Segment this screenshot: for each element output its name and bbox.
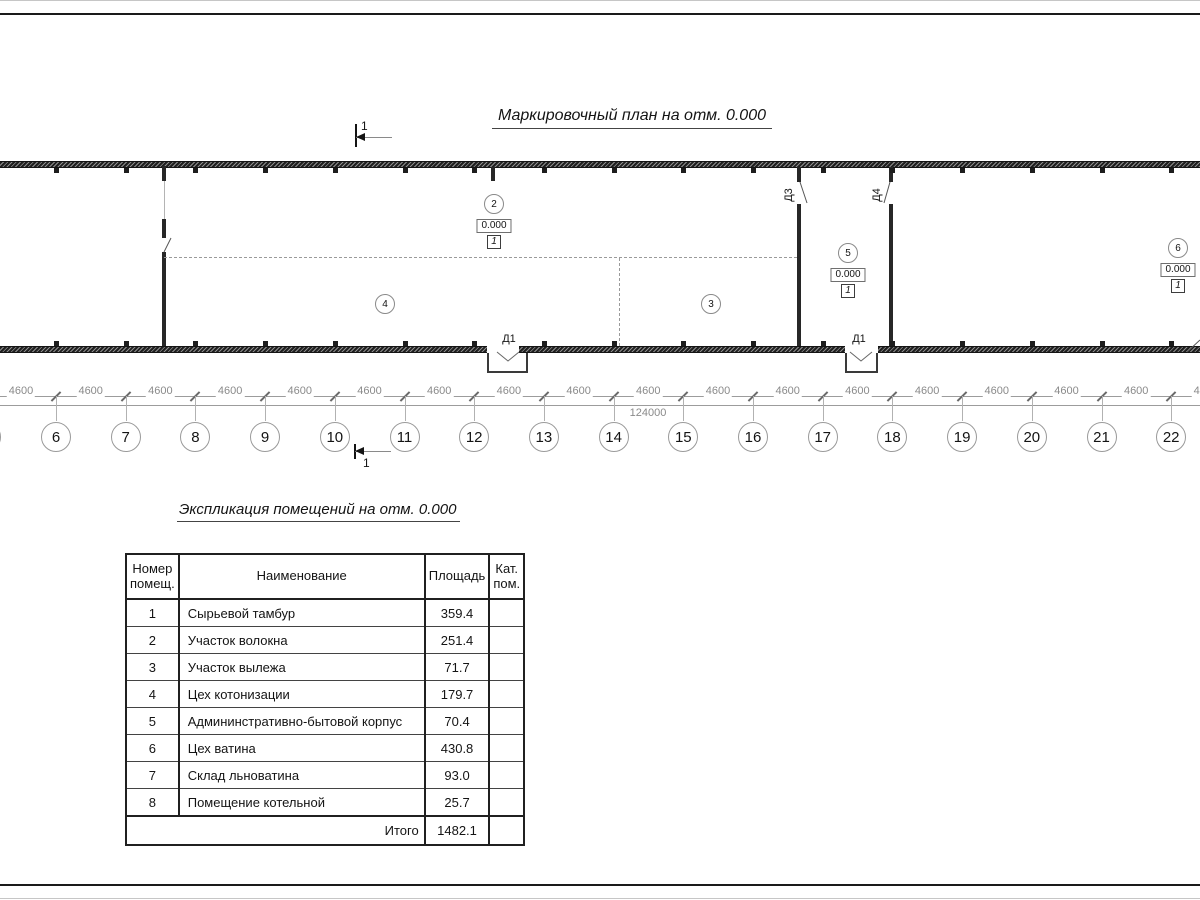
- bay-dimension-label: 4600: [216, 385, 244, 397]
- elevation-mark: 0.000: [830, 268, 865, 282]
- door-label: Д3: [783, 184, 795, 206]
- column-mark: [821, 341, 826, 346]
- floor-type-mark: 1: [1171, 279, 1185, 293]
- cell-room-name: Участок волокна: [179, 627, 425, 654]
- table-row: 5Админинстративно-бытовой корпус70.4: [126, 708, 524, 735]
- column-mark: [263, 168, 268, 173]
- door-label: Д1: [502, 333, 516, 345]
- floor-type-mark: 1: [487, 235, 501, 249]
- column-mark: [193, 168, 198, 173]
- cell-room-name: Помещение котельной: [179, 789, 425, 817]
- column-mark: [612, 341, 617, 346]
- cell-room-number: 5: [126, 708, 179, 735]
- cell-room-number: 3: [126, 654, 179, 681]
- axis-extension-line: [1032, 396, 1033, 421]
- room-number-bubble: 5: [838, 243, 858, 263]
- column-mark: [124, 168, 129, 173]
- axis-bubble: 18: [877, 422, 907, 452]
- cell-room-category: [489, 599, 524, 627]
- cell-room-number: 7: [126, 762, 179, 789]
- column-mark: [1169, 168, 1174, 173]
- axis-bubble-partial: [0, 422, 1, 452]
- door-porch-right: [845, 353, 878, 373]
- bay-dimension-label: 4600: [76, 385, 104, 397]
- sheet-edge-bottom: [0, 898, 1200, 899]
- bay-dimension-label: 4600: [286, 385, 314, 397]
- room-schedule-table: Номер помещ. Наименование Площадь Кат. п…: [125, 553, 525, 846]
- door-porch-left: [487, 353, 528, 373]
- wall-stub: [491, 167, 495, 181]
- wall-c-lower: [889, 204, 893, 346]
- table-title: Экспликация помещений на отм. 0.000: [177, 501, 460, 522]
- cell-room-name: Участок вылежа: [179, 654, 425, 681]
- bay-dimension-label: 4600: [983, 385, 1011, 397]
- column-mark: [333, 341, 338, 346]
- axis-extension-line: [683, 396, 684, 421]
- table-row: 3Участок вылежа71.7: [126, 654, 524, 681]
- axis-extension-line: [1171, 396, 1172, 421]
- header-room-area: Площадь: [425, 554, 490, 599]
- column-mark: [821, 168, 826, 173]
- axis-extension-line: [544, 396, 545, 421]
- wall-b-lower: [797, 204, 801, 346]
- bay-dimension-label: 4600: [843, 385, 871, 397]
- cell-total-area: 1482.1: [425, 816, 490, 845]
- bay-dimension-label: 4600: [564, 385, 592, 397]
- table-row: 7Склад льноватина93.0: [126, 762, 524, 789]
- cell-room-category: [489, 789, 524, 817]
- cell-room-category: [489, 654, 524, 681]
- cell-room-category: [489, 681, 524, 708]
- axis-bubble: 8: [180, 422, 210, 452]
- wall-b-stub: [797, 167, 801, 182]
- cell-room-category: [489, 735, 524, 762]
- wall-a-opening-line: [164, 181, 165, 219]
- axis-bubble: 16: [738, 422, 768, 452]
- axis-extension-line: [195, 396, 196, 421]
- column-mark: [960, 341, 965, 346]
- elevation-mark: 0.000: [476, 219, 511, 233]
- room-number-bubble: 6: [1168, 238, 1188, 258]
- cell-room-name: Склад льноватина: [179, 762, 425, 789]
- table-row: 1Сырьевой тамбур359.4: [126, 599, 524, 627]
- bay-dimension-label: 4600: [355, 385, 383, 397]
- zone-boundary-vertical: [619, 258, 620, 346]
- axis-bubble: 14: [599, 422, 629, 452]
- column-mark: [890, 341, 895, 346]
- axis-extension-line: [892, 396, 893, 421]
- bay-dimension-label: 4600: [146, 385, 174, 397]
- section-mark-bottom-label: 1: [363, 456, 370, 470]
- cell-room-number: 2: [126, 627, 179, 654]
- header-room-category: Кат. пом.: [489, 554, 524, 599]
- cell-room-area: 430.8: [425, 735, 490, 762]
- axis-extension-line: [474, 396, 475, 421]
- column-mark: [1100, 168, 1105, 173]
- bay-dimension-label: 4600: [773, 385, 801, 397]
- sheet-border-bottom: [0, 884, 1200, 886]
- axis-extension-line: [962, 396, 963, 421]
- axis-bubble: 19: [947, 422, 977, 452]
- cell-room-category: [489, 708, 524, 735]
- section-mark-top-label: 1: [361, 119, 368, 133]
- column-mark: [263, 341, 268, 346]
- sheet-border-top: [0, 13, 1200, 15]
- column-mark: [960, 168, 965, 173]
- plan-title: Маркировочный план на отм. 0.000: [492, 107, 772, 129]
- header-room-name: Наименование: [179, 554, 425, 599]
- room-number-bubble: 2: [484, 194, 504, 214]
- cell-room-name: Цех ватина: [179, 735, 425, 762]
- column-mark: [54, 341, 59, 346]
- cell-room-area: 179.7: [425, 681, 490, 708]
- table-row: 6Цех ватина430.8: [126, 735, 524, 762]
- door-label: Д1: [852, 333, 866, 345]
- cell-room-name: Админинстративно-бытовой корпус: [179, 708, 425, 735]
- room-number-bubble: 4: [375, 294, 395, 314]
- door-swing-d3: [800, 182, 807, 203]
- axis-bubble: 9: [250, 422, 280, 452]
- axis-extension-line: [126, 396, 127, 421]
- section-arrow-bottom-icon: [355, 447, 364, 455]
- axis-bubble: 12: [459, 422, 489, 452]
- elevation-mark: 0.000: [1160, 263, 1195, 277]
- cell-room-category: [489, 627, 524, 654]
- bay-dimension-label: 4600: [495, 385, 523, 397]
- column-mark: [751, 341, 756, 346]
- wall-a-lower: [162, 252, 166, 346]
- column-mark: [681, 168, 686, 173]
- dimension-line-overall: [0, 405, 1200, 406]
- sheet-edge-top: [0, 0, 1200, 1]
- bay-dimension-label: 4600: [1122, 385, 1150, 397]
- axis-bubble: 22: [1156, 422, 1186, 452]
- table-header-row: Номер помещ. Наименование Площадь Кат. п…: [126, 554, 524, 599]
- axis-bubble: 11: [390, 422, 420, 452]
- bay-dimension-label: 4600: [704, 385, 732, 397]
- zone-boundary-horizontal: [164, 257, 797, 258]
- axis-extension-line: [405, 396, 406, 421]
- axis-bubble: 7: [111, 422, 141, 452]
- wall-bottom-middle: [519, 346, 845, 353]
- axis-extension-line: [265, 396, 266, 421]
- bay-dimension-label: 4600: [7, 385, 35, 397]
- table-row: 8Помещение котельной25.7: [126, 789, 524, 817]
- axis-bubble: 10: [320, 422, 350, 452]
- wall-a-stub: [162, 166, 166, 181]
- cell-room-name: Цех котонизации: [179, 681, 425, 708]
- axis-extension-line: [823, 396, 824, 421]
- wall-a-mid: [162, 219, 166, 238]
- axis-extension-line: [753, 396, 754, 421]
- floor-type-mark: 1: [841, 284, 855, 298]
- column-mark: [751, 168, 756, 173]
- door-swing-d4: [884, 182, 890, 203]
- column-mark: [193, 341, 198, 346]
- cell-room-area: 71.7: [425, 654, 490, 681]
- bay-dimension-label: 4600: [634, 385, 662, 397]
- axis-bubble: 20: [1017, 422, 1047, 452]
- wall-bottom-right: [878, 346, 1200, 353]
- cell-room-area: 359.4: [425, 599, 490, 627]
- column-mark: [542, 168, 547, 173]
- column-mark: [542, 341, 547, 346]
- column-mark: [472, 168, 477, 173]
- column-mark: [1030, 341, 1035, 346]
- wall-bottom-left: [0, 346, 487, 353]
- cell-room-number: 4: [126, 681, 179, 708]
- column-mark: [403, 341, 408, 346]
- column-mark: [890, 168, 895, 173]
- cell-room-number: 6: [126, 735, 179, 762]
- column-mark: [54, 168, 59, 173]
- cell-room-number: 1: [126, 599, 179, 627]
- door-label: Д4: [871, 184, 883, 206]
- overall-dimension-label: 124000: [628, 407, 669, 419]
- column-mark: [403, 168, 408, 173]
- bay-dimension-label: 4600: [425, 385, 453, 397]
- axis-bubble: 15: [668, 422, 698, 452]
- table-row: 4Цех котонизации179.7: [126, 681, 524, 708]
- column-mark: [1100, 341, 1105, 346]
- column-mark: [681, 341, 686, 346]
- table-total-row: Итого1482.1: [126, 816, 524, 845]
- cell-room-name: Сырьевой тамбур: [179, 599, 425, 627]
- cell-room-area: 93.0: [425, 762, 490, 789]
- cell-total-label: Итого: [126, 816, 425, 845]
- axis-extension-line: [614, 396, 615, 421]
- cell-room-area: 251.4: [425, 627, 490, 654]
- axis-bubble: 17: [808, 422, 838, 452]
- header-room-number: Номер помещ.: [126, 554, 179, 599]
- axis-bubble: 13: [529, 422, 559, 452]
- cell-room-number: 8: [126, 789, 179, 817]
- door-swing-wall-a: [164, 238, 171, 252]
- cell-total-category: [489, 816, 524, 845]
- bay-dimension-label: 4600: [913, 385, 941, 397]
- bay-dimension-label: 4600: [1052, 385, 1080, 397]
- cell-room-category: [489, 762, 524, 789]
- column-mark: [472, 341, 477, 346]
- column-mark: [1169, 341, 1174, 346]
- axis-extension-line: [1102, 396, 1103, 421]
- bay-dimension-label: 4600: [1192, 385, 1200, 397]
- axis-extension-line: [335, 396, 336, 421]
- axis-extension-line: [56, 396, 57, 421]
- column-mark: [124, 341, 129, 346]
- axis-bubble: 21: [1087, 422, 1117, 452]
- table-row: 2Участок волокна251.4: [126, 627, 524, 654]
- column-mark: [333, 168, 338, 173]
- column-mark: [612, 168, 617, 173]
- section-arrow-top-icon: [356, 133, 365, 141]
- drawing-sheet: Маркировочный план на отм. 0.000 Эксплик…: [0, 0, 1200, 900]
- cell-room-area: 25.7: [425, 789, 490, 817]
- wall-top: [0, 161, 1200, 168]
- column-mark: [1030, 168, 1035, 173]
- cell-room-area: 70.4: [425, 708, 490, 735]
- room-number-bubble: 3: [701, 294, 721, 314]
- dimension-line-bays: [0, 396, 1200, 397]
- axis-bubble: 6: [41, 422, 71, 452]
